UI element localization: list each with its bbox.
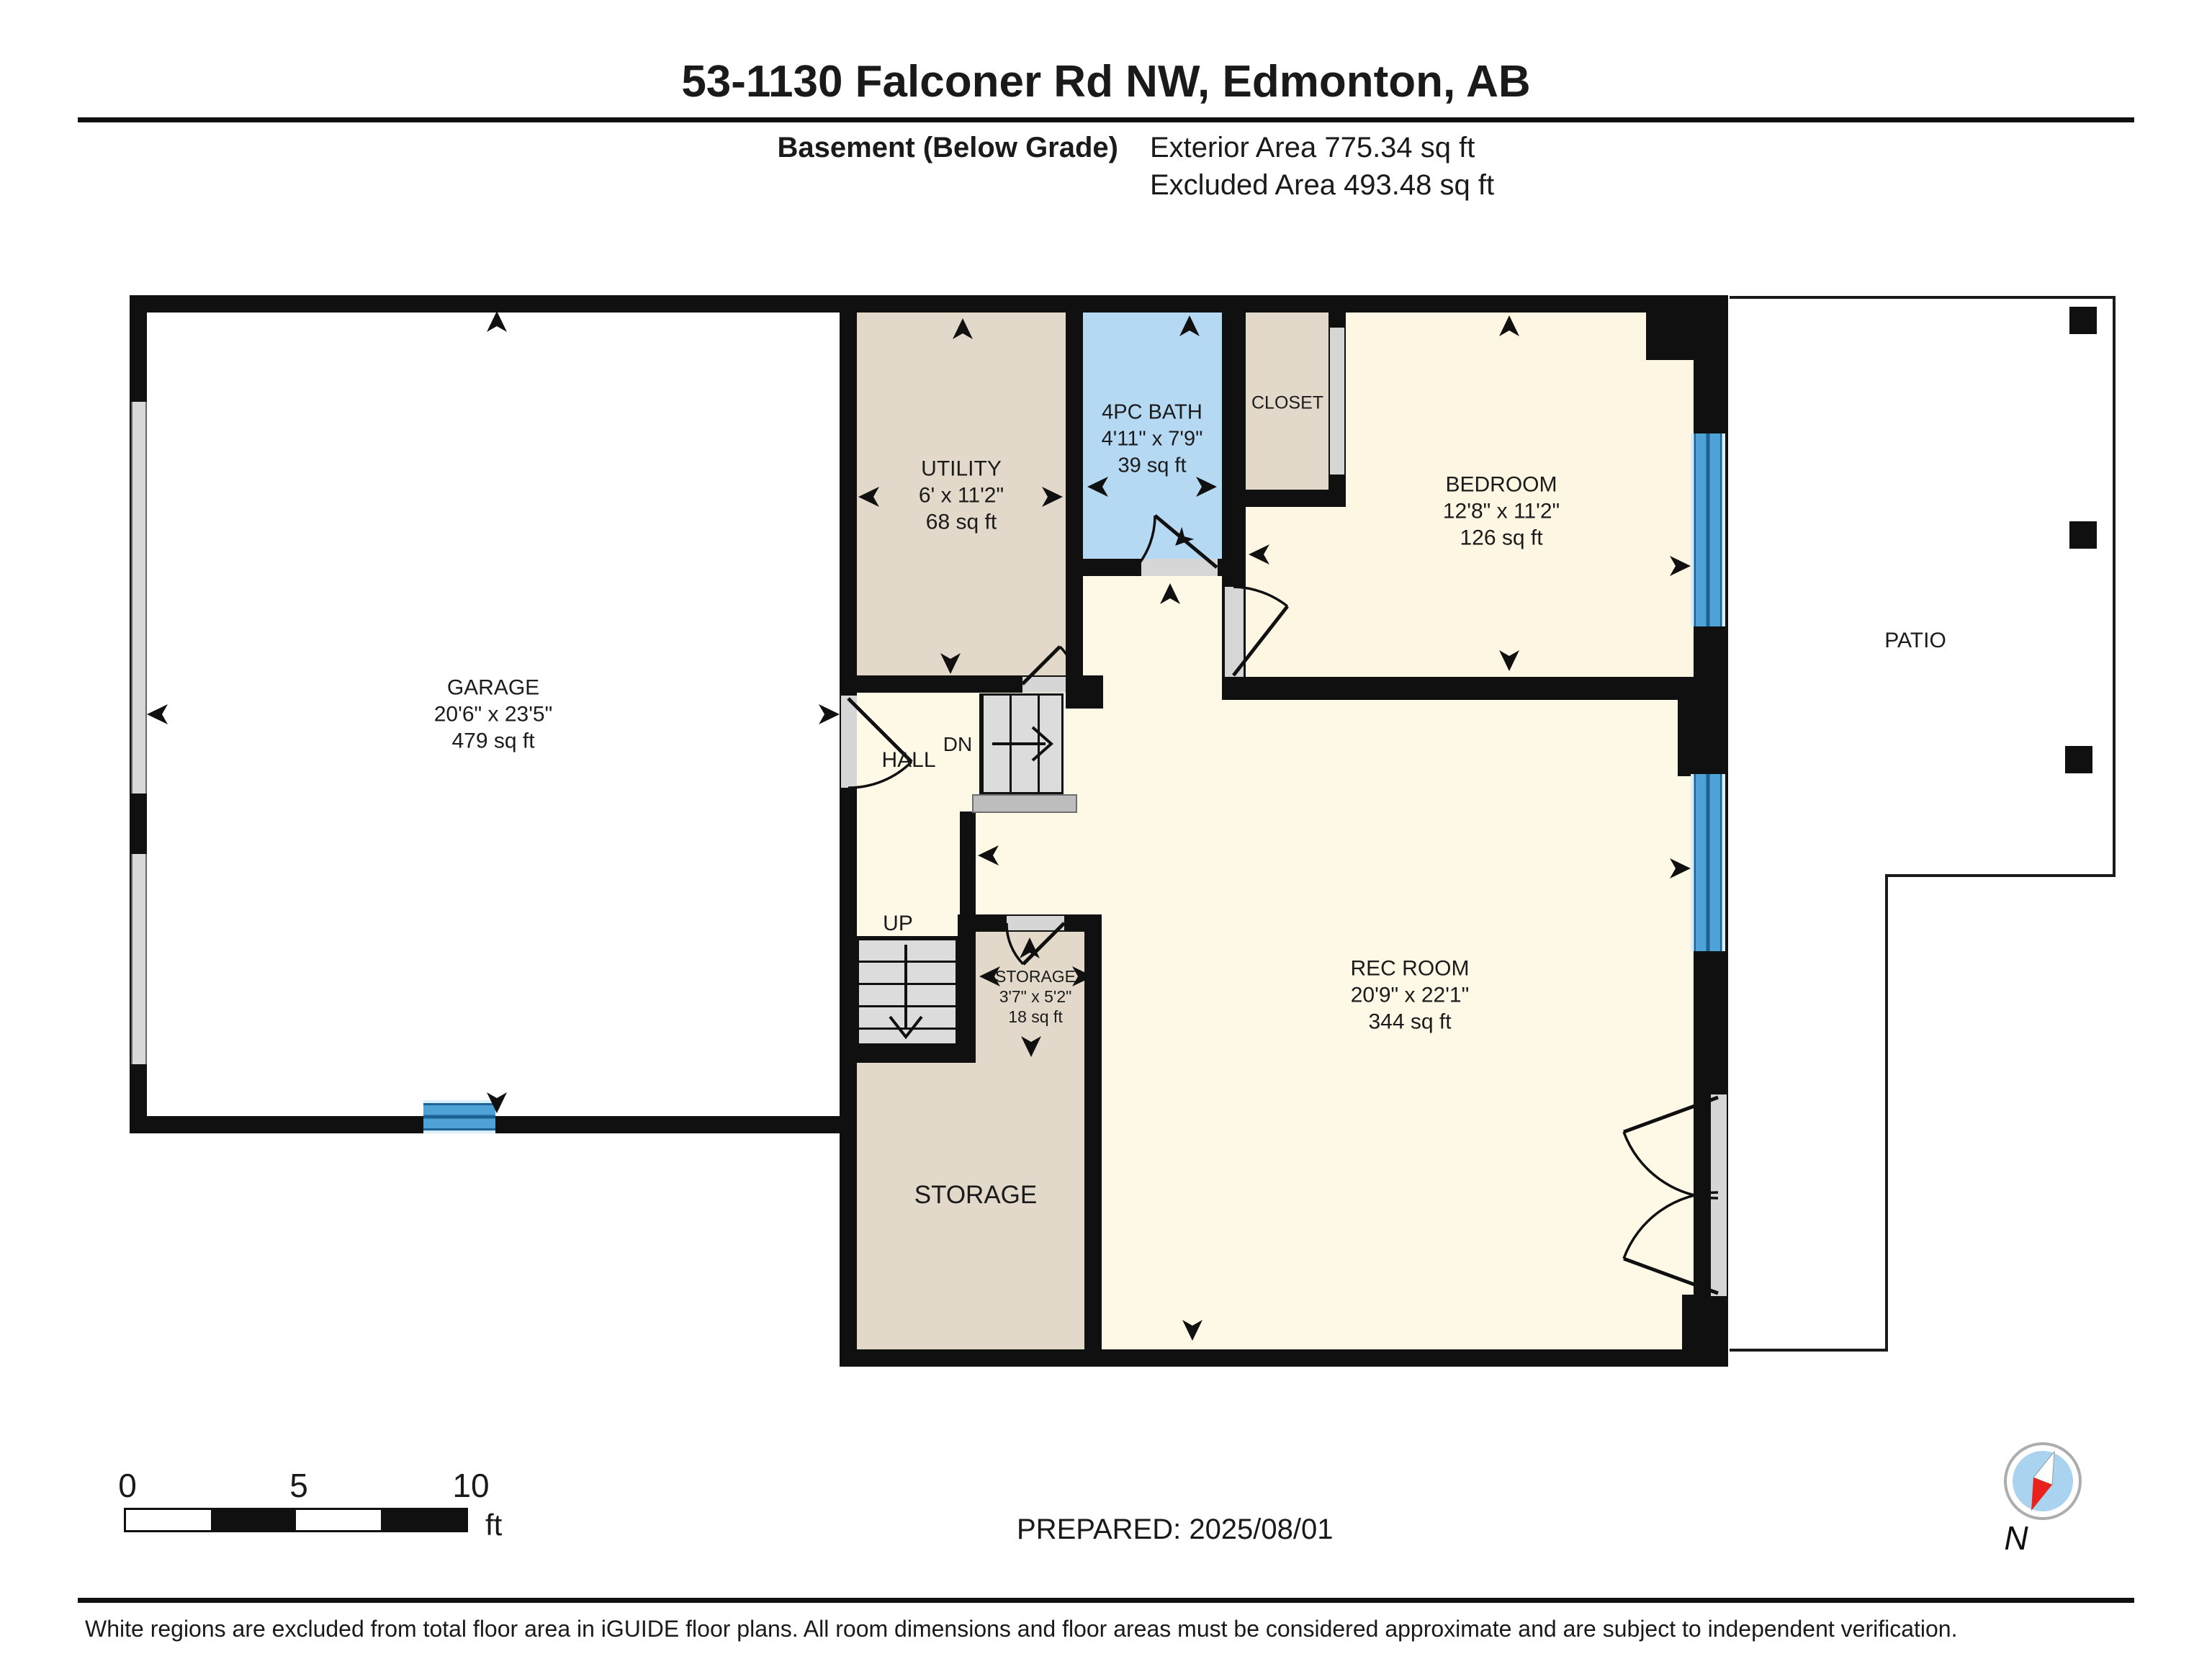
dim-arrow-down-icon: [1499, 650, 1519, 671]
label-patio: PATIO: [1884, 629, 1946, 653]
dim-arrow-right-icon: [1670, 556, 1691, 576]
dim-arrow-down-icon: [940, 653, 961, 674]
footer-divider: [78, 1598, 2134, 1603]
label-bedroom: BEDROOM 12'8" x 11'2" 126 sq ft: [1443, 472, 1560, 552]
floorplan-page: 53-1130 Falconer Rd NW, Edmonton, AB Bas…: [0, 0, 2212, 1659]
scale-tick-5: 5: [289, 1466, 308, 1505]
label-hall: HALL: [881, 748, 935, 773]
dim-arrow-left-icon: [858, 487, 879, 507]
disclaimer: White regions are excluded from total fl…: [85, 1616, 1957, 1642]
dim-arrow-up-icon: [487, 311, 507, 332]
patio-outline: [1730, 297, 2114, 1350]
prepared-date: PREPARED: 2025/08/01: [1017, 1514, 1334, 1546]
dim-arrow-down-icon: [487, 1092, 507, 1113]
dim-arrow-up-icon: [1499, 315, 1519, 336]
dim-arrow-left-icon: [1087, 477, 1108, 497]
dim-arrow-left-icon: [1249, 544, 1269, 565]
compass-north-label: N: [2004, 1519, 2028, 1557]
dim-arrow-right-icon: [1042, 487, 1063, 507]
scale-bar: [124, 1508, 468, 1532]
patio-post-icon: [2065, 746, 2092, 773]
plan-overlay: N: [0, 0, 2212, 1659]
patio-post-icon: [2069, 521, 2097, 549]
dim-arrow-up-icon: [1179, 315, 1200, 336]
dim-arrow-left-icon: [147, 704, 168, 724]
dim-arrow-down-icon: [1182, 1320, 1202, 1341]
label-bath: 4PC BATH 4'11" x 7'9" 39 sq ft: [1102, 400, 1203, 480]
label-storage-small: STORAGE 3'7" x 5'2" 18 sq ft: [995, 966, 1076, 1027]
scale-tick-10: 10: [452, 1466, 489, 1505]
dim-arrow-right-icon: [819, 704, 840, 724]
dim-arrow-right-icon: [1670, 858, 1691, 878]
scale-unit: ft: [485, 1508, 502, 1542]
label-utility: UTILITY 6' x 11'2" 68 sq ft: [919, 456, 1004, 536]
label-stairs-dn: DN: [943, 733, 972, 756]
compass-icon: N: [2004, 1444, 2080, 1557]
label-garage: GARAGE 20'6" x 23'5" 479 sq ft: [434, 675, 553, 755]
patio-post-icon: [2069, 307, 2097, 334]
scale-tick-0: 0: [118, 1466, 137, 1505]
dim-arrow-up-icon: [953, 318, 973, 339]
label-storage-large: STORAGE: [914, 1181, 1038, 1210]
label-rec-room: REC ROOM 20'9" x 22'1" 344 sq ft: [1351, 956, 1470, 1035]
dim-arrow-right-icon: [1196, 477, 1217, 497]
label-closet: CLOSET: [1251, 393, 1323, 414]
dim-arrow-up-icon: [1160, 583, 1180, 604]
dim-arrow-left-icon: [978, 845, 999, 866]
dim-arrow-down-icon: [1021, 1036, 1041, 1057]
door-swings: [848, 516, 1718, 1293]
label-stairs-up: UP: [883, 912, 913, 936]
